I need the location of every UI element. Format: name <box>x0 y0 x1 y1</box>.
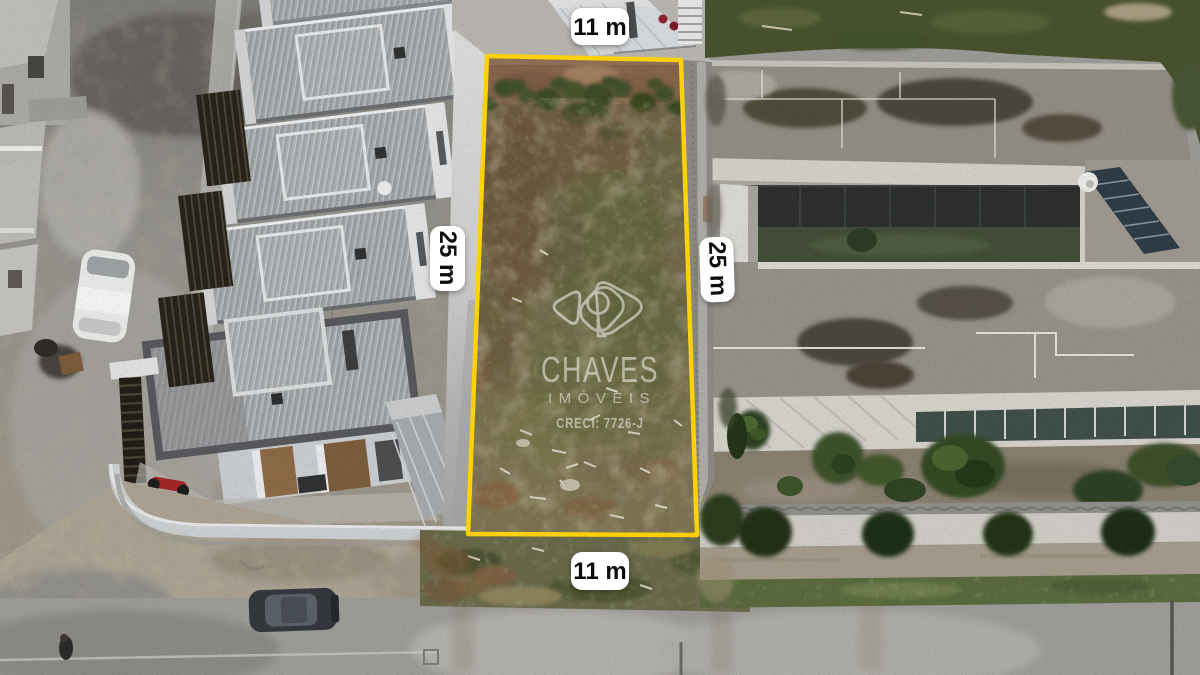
svg-text:11 m: 11 m <box>573 558 626 585</box>
svg-text:CRECI: 7726-J: CRECI: 7726-J <box>556 415 643 432</box>
svg-text:25 m: 25 m <box>434 231 461 286</box>
svg-text:IMÓVEIS: IMÓVEIS <box>548 390 656 407</box>
svg-text:25 m: 25 m <box>703 241 732 297</box>
svg-text:CHAVES: CHAVES <box>541 349 659 390</box>
svg-text:11 m: 11 m <box>573 14 626 41</box>
